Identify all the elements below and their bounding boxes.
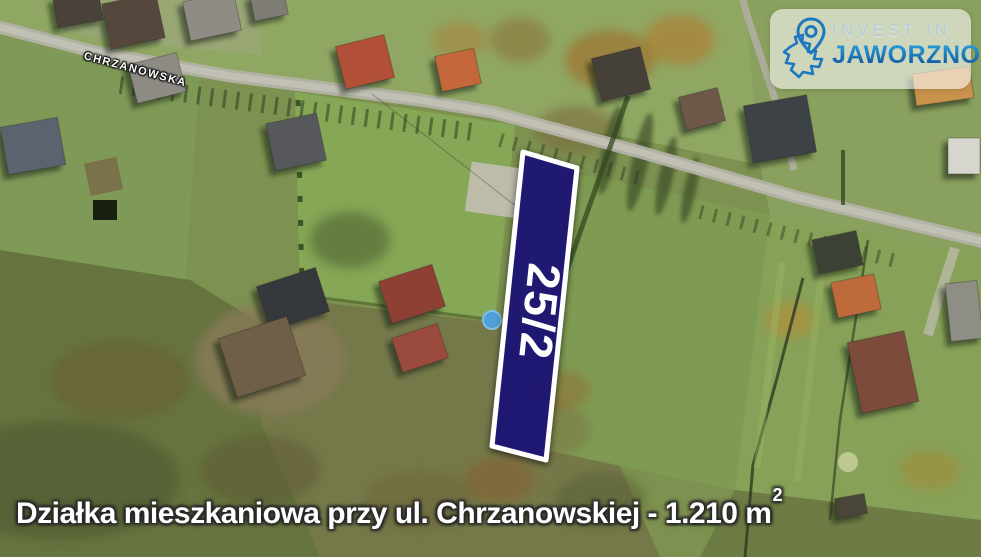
aerial-map-view: 25/2 CHRZANOWSKA INVEST IN JAWORZNO Dzia… — [0, 0, 981, 557]
caption-superscript: 2 — [772, 485, 782, 505]
invest-in-jaworzno-logo: INVEST IN JAWORZNO — [770, 9, 971, 89]
caption-text: Działka mieszkaniowa przy ul. Chrzanowsk… — [16, 497, 771, 530]
map-pin-icon — [780, 17, 832, 83]
caption: Działka mieszkaniowa przy ul. Chrzanowsk… — [16, 496, 781, 531]
logo-line1: INVEST IN — [832, 22, 980, 39]
logo-line2: JAWORZNO — [832, 43, 980, 68]
parcel-label: 25/2 — [509, 261, 571, 363]
